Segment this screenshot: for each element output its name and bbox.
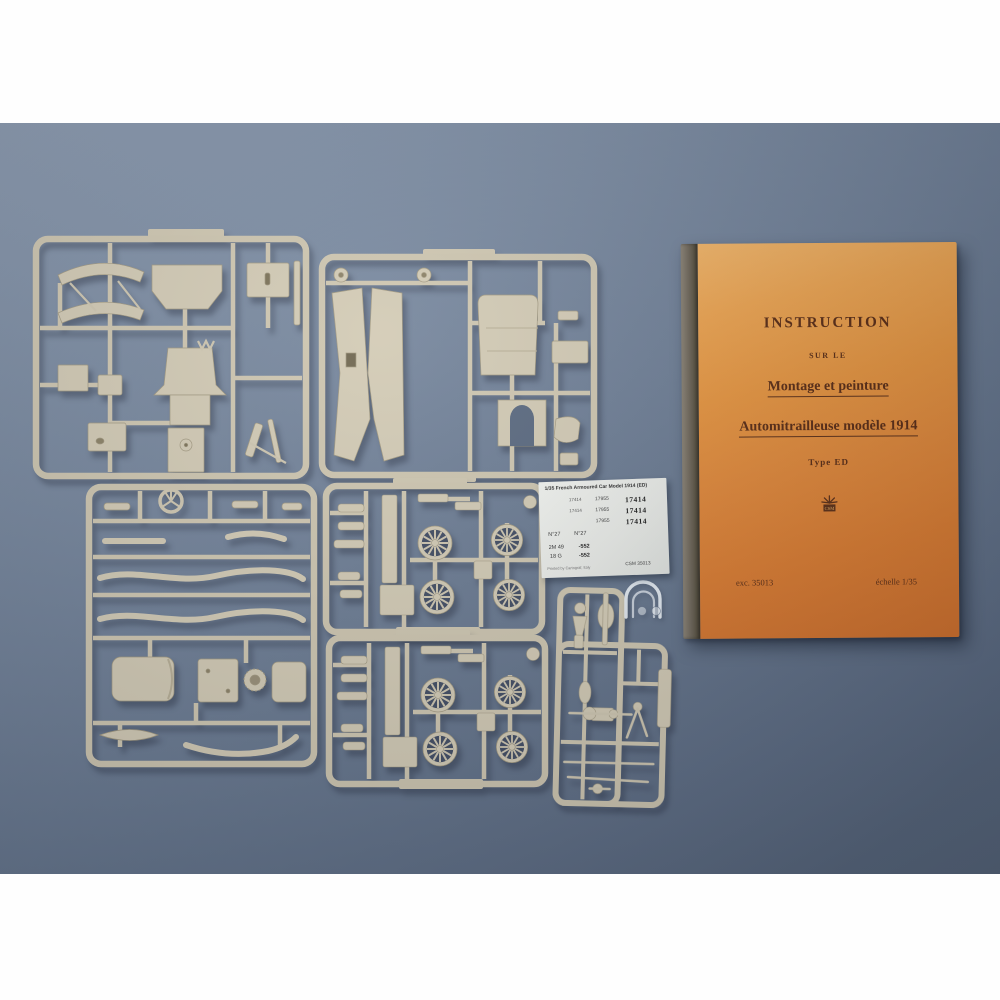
decal-sheet-code: CSM 35013 — [625, 561, 651, 567]
decal-code: 18 G — [550, 553, 562, 559]
booklet-type-line: Type ED — [699, 456, 958, 468]
booklet-heading2: Automitrailleuse modèle 1914 — [699, 418, 958, 436]
decal-stencil: N°27 — [574, 531, 586, 537]
booklet-overline: SUR LE — [698, 350, 957, 361]
sprue-f-axle-parts — [555, 590, 673, 806]
booklet-title: INSTRUCTION — [698, 314, 957, 333]
sprue-d-wheels — [326, 478, 542, 637]
decal-header: 1/35 French Armoured Car Model 1914 (ED) — [544, 482, 647, 492]
sprue-c-chassis-parts — [89, 487, 314, 764]
decal-number: 17414 — [569, 497, 582, 502]
booklet-scale: échelle 1/35 — [876, 576, 917, 586]
decal-number: 17955 — [596, 518, 610, 524]
booklet-cover: INSTRUCTION SUR LE Montage et peinture A… — [698, 242, 960, 639]
decal-number: 17414 — [625, 495, 647, 505]
decal-stencil: N°27 — [548, 532, 560, 538]
decal-number: 17414 — [625, 506, 647, 516]
decal-number: 17414 — [626, 516, 648, 526]
decal-code: -552 — [579, 553, 590, 559]
csm-logo-icon: CSM — [820, 495, 838, 515]
sprue-e-wheels — [329, 630, 545, 789]
booklet-ref-number: exc. 35013 — [736, 577, 773, 587]
instruction-booklet: INSTRUCTION SUR LE Montage et peinture A… — [681, 242, 960, 639]
booklet-footer: exc. 35013 échelle 1/35 — [700, 576, 959, 578]
clear-parts-windscreen — [626, 582, 660, 617]
sprue-a-body-parts — [36, 229, 306, 476]
decal-code: -552 — [579, 544, 590, 550]
kit-contents-photo: 1/35 French Armoured Car Model 1914 (ED)… — [0, 123, 1000, 874]
decal-printer-note: Printed by Cartograf, Italy — [547, 565, 590, 571]
sprue-b-hull-panels — [322, 249, 594, 482]
decal-number: 17955 — [595, 507, 609, 513]
page-background: 1/35 French Armoured Car Model 1914 (ED)… — [0, 0, 1000, 1000]
decal-sheet: 1/35 French Armoured Car Model 1914 (ED)… — [538, 478, 669, 578]
decal-code: 2M 49 — [549, 544, 564, 551]
decal-number: 17414 — [569, 508, 582, 513]
decal-number: 17955 — [595, 496, 609, 502]
svg-text:CSM: CSM — [824, 506, 834, 511]
booklet-heading1: Montage et peinture — [699, 378, 958, 396]
